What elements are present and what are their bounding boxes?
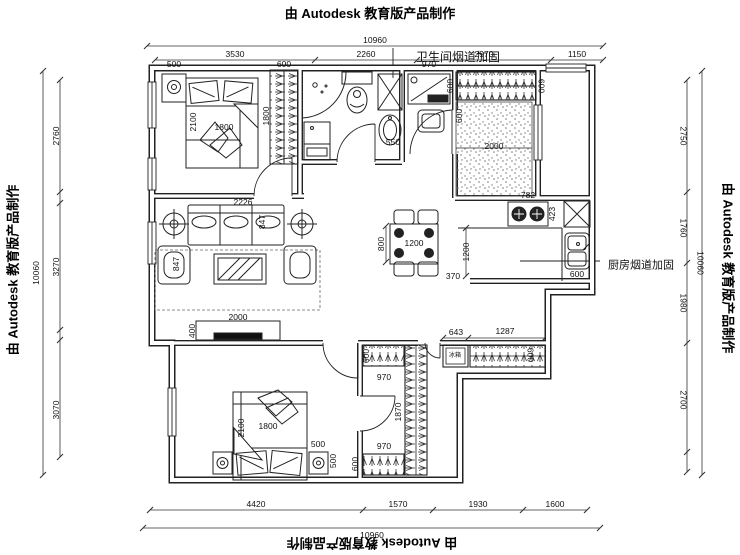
bed [233, 392, 307, 480]
tatami-area [456, 102, 532, 196]
toilet-tank [342, 72, 372, 84]
window-bedroom1-a [148, 82, 156, 128]
tv [214, 333, 262, 339]
door-arc [337, 124, 375, 162]
walkin-closet [360, 345, 427, 475]
living-furniture [155, 205, 320, 340]
floorplan-page: 由 Autodesk 教育版产品制作 由 Autodesk 教育版产品制作 由 … [0, 0, 740, 555]
counter [458, 228, 562, 281]
blanket [258, 390, 298, 424]
bathroom-fixtures [302, 72, 402, 162]
window-bedroom1-b [148, 158, 156, 190]
sofa [188, 205, 284, 245]
kitchen-fixtures [458, 201, 590, 281]
nightstand [213, 452, 232, 474]
floorplan-drawing [0, 0, 740, 555]
window-shaft [534, 105, 542, 160]
washing-machine [304, 122, 330, 160]
chair [394, 210, 414, 224]
bottomright-strip [425, 343, 545, 367]
closet-bottom [363, 454, 404, 475]
bedroom1-furniture [162, 70, 298, 196]
window-top [546, 64, 586, 72]
door-arc [323, 343, 358, 378]
lamp-icon [168, 81, 181, 94]
entry-furniture [408, 74, 452, 154]
dining-furniture [390, 210, 438, 276]
topright-room [456, 72, 536, 196]
closet-top [363, 345, 404, 366]
window-bedroom2 [168, 388, 176, 436]
bedroom2-furniture [213, 343, 358, 480]
sink [565, 233, 589, 269]
door-arc [360, 396, 395, 431]
chair [418, 210, 438, 224]
nightstand [309, 452, 328, 474]
nightstand [162, 74, 186, 102]
shower [302, 72, 346, 118]
